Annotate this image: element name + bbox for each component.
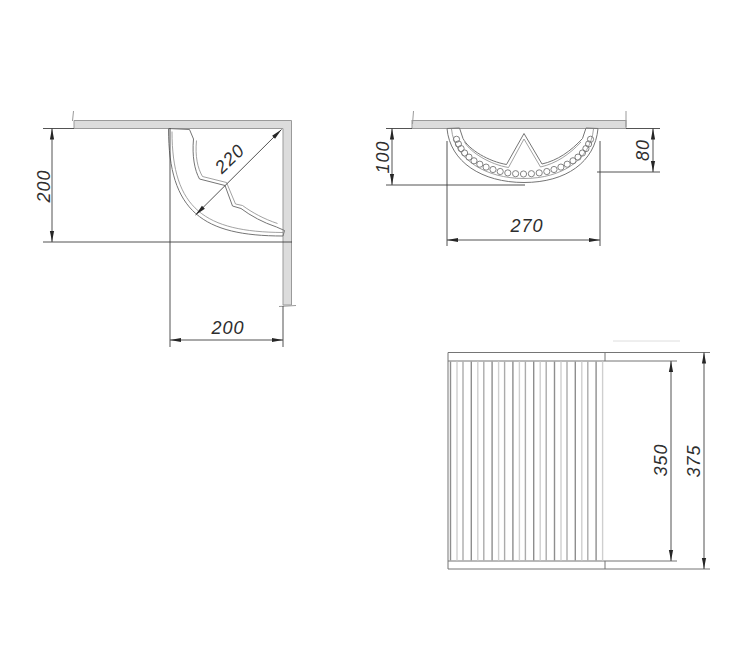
dimension-arrowhead	[702, 353, 706, 364]
crown-hole	[477, 161, 483, 167]
crown-right-cap	[583, 128, 599, 139]
crown-hole	[471, 158, 477, 164]
dimension-arrowhead	[589, 238, 600, 242]
dimension-arrowhead	[669, 361, 673, 372]
crown-w-inner-edge	[465, 139, 582, 168]
corner-top-view: 200 220 200	[34, 111, 296, 347]
crown-hole	[520, 171, 526, 177]
dimension-arrows	[50, 128, 706, 569]
wall-end-tick	[279, 306, 296, 307]
drawing-sheet: 200 220 200 100 80	[0, 0, 750, 660]
dim-label-375: 375	[684, 444, 704, 477]
crown-hole	[558, 164, 564, 170]
crown-hole	[483, 164, 489, 170]
crown-w-edge	[463, 134, 583, 165]
dimension-arrowhead	[702, 558, 706, 569]
dim-label-200-vertical: 200	[34, 169, 54, 203]
crown-hole	[497, 168, 503, 174]
crown-hole	[513, 171, 519, 177]
dimension-arrowhead	[50, 129, 54, 140]
dimension-arrowhead	[50, 231, 54, 242]
crown-hole	[564, 161, 570, 167]
dimension-arrowhead	[447, 238, 458, 242]
crown-hole	[536, 170, 542, 176]
crown-hole	[490, 166, 496, 172]
dim-label-350: 350	[651, 443, 671, 476]
dim-label-100: 100	[373, 140, 393, 173]
side-view: 350 375	[448, 341, 710, 569]
crown-hole-row	[453, 136, 593, 177]
crown-hole	[505, 170, 511, 176]
corner-wall-section	[74, 121, 292, 306]
crown-hole	[458, 146, 464, 152]
wall-end-tick	[73, 111, 74, 121]
dimension-arrowhead	[651, 161, 655, 172]
dimension-arrowhead	[390, 174, 394, 185]
dimension-arrowhead	[669, 550, 673, 561]
dimension-arrowhead	[170, 338, 181, 342]
front-wall-section	[412, 121, 626, 129]
crown-hole	[551, 166, 557, 172]
crown-hole	[528, 171, 534, 177]
dim-label-220-diagonal: 220	[210, 140, 248, 178]
dimension-arrowhead	[390, 129, 394, 140]
dim-label-270: 270	[509, 216, 543, 236]
technical-drawing: 200 220 200 100 80	[0, 0, 750, 660]
dim-line-220-diagonal	[196, 130, 282, 216]
dimension-arrowhead	[272, 338, 283, 342]
dim-label-200-horizontal: 200	[210, 318, 244, 338]
dimension-arrowhead	[651, 129, 655, 140]
front-view: 100 80 270	[373, 111, 660, 246]
dim-label-80: 80	[633, 139, 653, 161]
slat-texture	[451, 362, 603, 561]
crown-hole	[544, 168, 550, 174]
